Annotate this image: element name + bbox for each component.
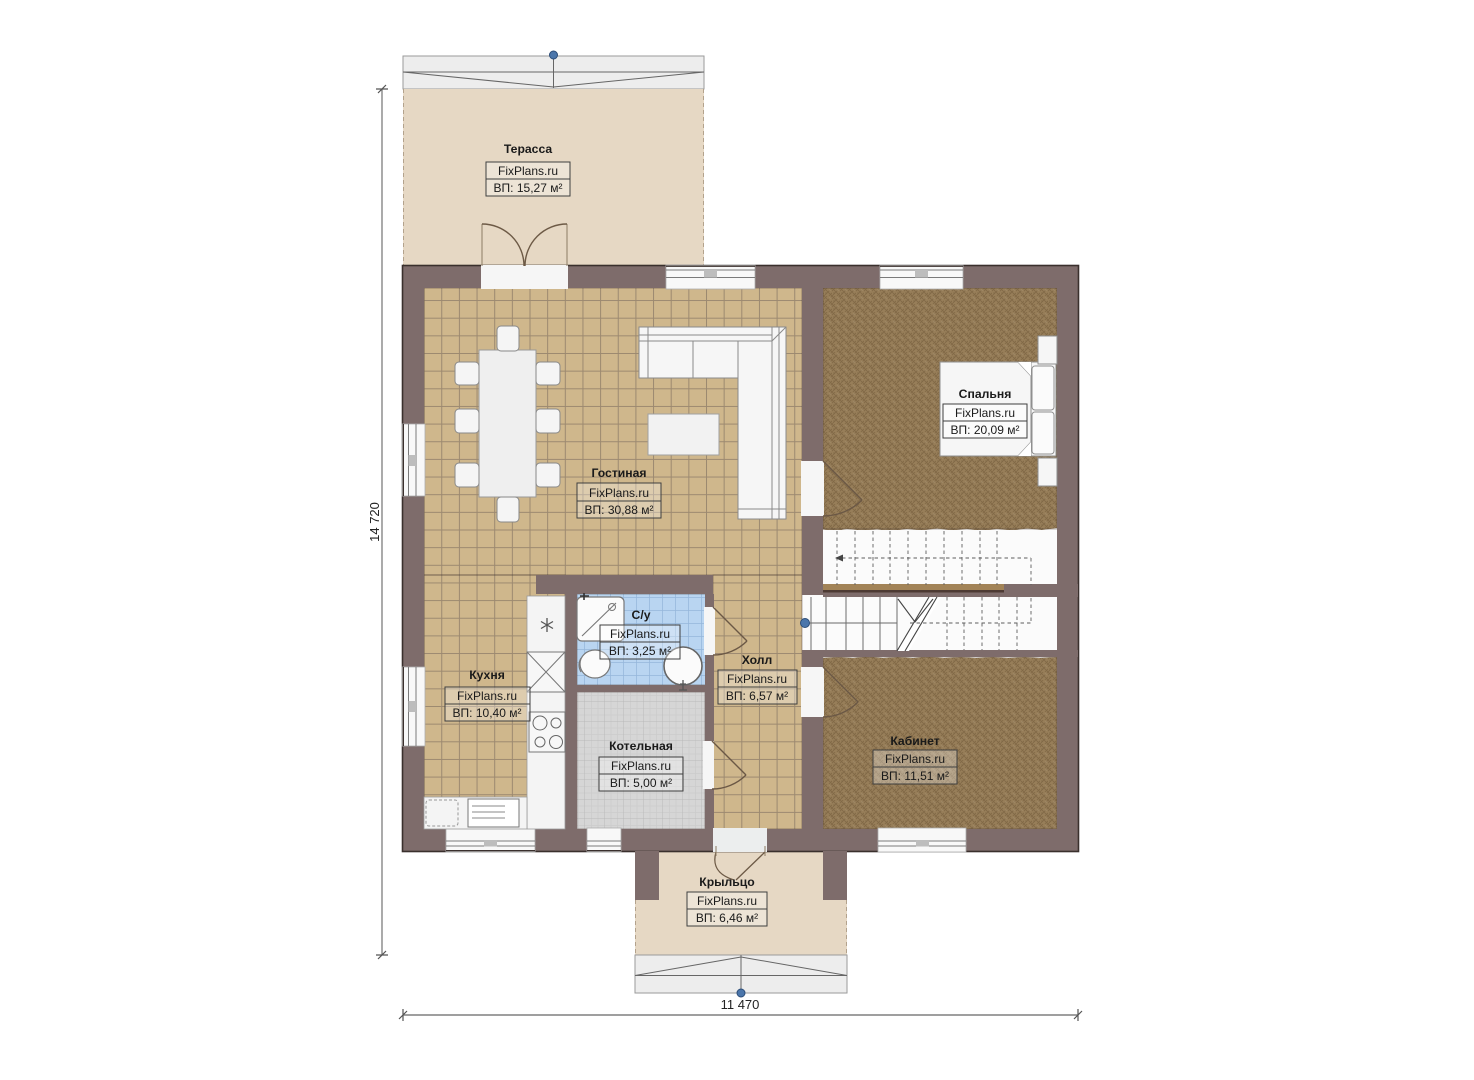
svg-text:Кабинет: Кабинет (890, 734, 939, 748)
svg-text:FixPlans.ru: FixPlans.ru (697, 894, 757, 908)
svg-text:FixPlans.ru: FixPlans.ru (610, 627, 670, 641)
svg-text:FixPlans.ru: FixPlans.ru (885, 752, 945, 766)
svg-text:ВП: 11,51 м²: ВП: 11,51 м² (881, 769, 949, 783)
svg-text:Гостиная: Гостиная (591, 466, 646, 480)
svg-text:FixPlans.ru: FixPlans.ru (727, 672, 787, 686)
svg-text:ВП: 30,88 м²: ВП: 30,88 м² (585, 503, 654, 517)
svg-text:14 720: 14 720 (367, 502, 382, 542)
svg-text:С/у: С/у (632, 608, 651, 622)
svg-text:Спальня: Спальня (959, 387, 1012, 401)
svg-text:ВП: 6,57 м²: ВП: 6,57 м² (726, 689, 788, 703)
svg-text:ВП: 6,46 м²: ВП: 6,46 м² (696, 911, 758, 925)
svg-text:ВП: 15,27 м²: ВП: 15,27 м² (494, 181, 563, 195)
svg-text:Котельная: Котельная (609, 739, 673, 753)
svg-text:ВП: 20,09 м²: ВП: 20,09 м² (951, 423, 1020, 437)
svg-text:Терасса: Терасса (504, 142, 553, 156)
svg-text:FixPlans.ru: FixPlans.ru (498, 164, 558, 178)
svg-text:FixPlans.ru: FixPlans.ru (955, 406, 1015, 420)
svg-text:FixPlans.ru: FixPlans.ru (611, 759, 671, 773)
svg-text:ВП: 5,00 м²: ВП: 5,00 м² (610, 776, 672, 790)
svg-text:FixPlans.ru: FixPlans.ru (589, 486, 649, 500)
svg-text:ВП: 10,40 м²: ВП: 10,40 м² (453, 706, 522, 720)
svg-text:Холл: Холл (742, 653, 773, 667)
svg-text:Кухня: Кухня (469, 668, 505, 682)
svg-text:Крыльцо: Крыльцо (699, 875, 754, 889)
svg-text:FixPlans.ru: FixPlans.ru (457, 689, 517, 703)
svg-text:11 470: 11 470 (721, 997, 760, 1012)
svg-text:ВП: 3,25 м²: ВП: 3,25 м² (609, 644, 671, 658)
